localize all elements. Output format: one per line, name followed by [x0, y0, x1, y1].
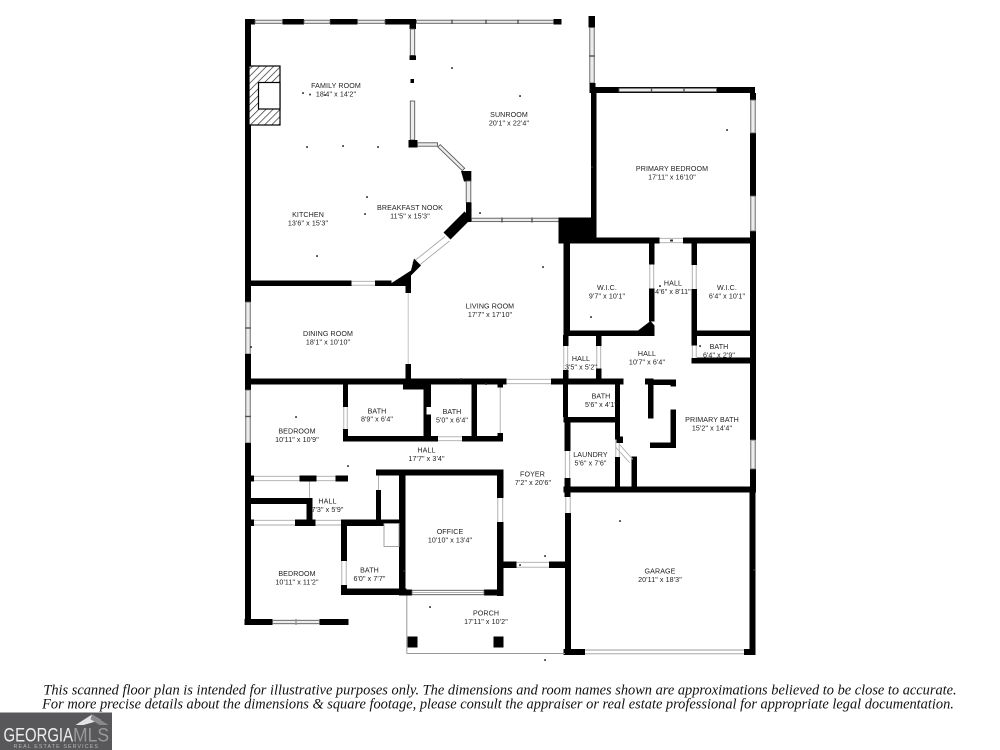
svg-text:FOYER: FOYER: [520, 470, 545, 478]
svg-text:BATH: BATH: [443, 408, 462, 416]
svg-text:BATH: BATH: [360, 567, 379, 575]
svg-text:20'11" x 18'3": 20'11" x 18'3": [638, 576, 682, 584]
svg-text:BATH: BATH: [368, 408, 387, 416]
svg-text:17'7" x 17'10": 17'7" x 17'10": [468, 311, 513, 319]
svg-text:HALL: HALL: [664, 280, 682, 288]
svg-text:For more precise details about: For more precise details about the dimen…: [41, 697, 954, 713]
svg-text:17'7" x 3'4": 17'7" x 3'4": [408, 455, 445, 463]
svg-text:W.I.C.: W.I.C.: [597, 284, 617, 292]
svg-text:BEDROOM: BEDROOM: [278, 428, 315, 436]
svg-text:W.I.C.: W.I.C.: [717, 284, 737, 292]
svg-text:HALL: HALL: [638, 350, 656, 358]
svg-text:OFFICE: OFFICE: [437, 528, 464, 536]
svg-text:18'4" x 14'2": 18'4" x 14'2": [316, 90, 357, 98]
svg-text:BREAKFAST NOOK: BREAKFAST NOOK: [377, 204, 443, 212]
svg-text:LIVING ROOM: LIVING ROOM: [466, 303, 514, 311]
svg-text:PRIMARY BEDROOM: PRIMARY BEDROOM: [636, 165, 708, 173]
svg-text:HALL: HALL: [572, 355, 590, 363]
svg-text:7'2" x 20'6": 7'2" x 20'6": [515, 479, 552, 487]
svg-text:PRIMARY BATH: PRIMARY BATH: [685, 416, 739, 424]
svg-text:BATH: BATH: [592, 393, 611, 401]
svg-text:FAMILY ROOM: FAMILY ROOM: [311, 82, 361, 90]
svg-text:6'4" x 10'1": 6'4" x 10'1": [709, 293, 746, 301]
svg-text:DINING ROOM: DINING ROOM: [303, 330, 353, 338]
svg-text:17'11" x 10'2": 17'11" x 10'2": [464, 618, 508, 626]
svg-text:13'6" x 15'3": 13'6" x 15'3": [288, 220, 329, 228]
svg-text:10'7" x 6'4": 10'7" x 6'4": [629, 359, 666, 367]
svg-text:9'7" x 10'1": 9'7" x 10'1": [589, 293, 626, 301]
svg-text:HALL: HALL: [318, 497, 336, 505]
svg-text:BEDROOM: BEDROOM: [278, 570, 315, 578]
svg-text:10'11" x 11'2": 10'11" x 11'2": [275, 579, 319, 587]
svg-text:KITCHEN: KITCHEN: [292, 211, 324, 219]
svg-text:20'1" x 22'4": 20'1" x 22'4": [489, 119, 530, 127]
svg-text:8'9" x 6'4": 8'9" x 6'4": [361, 416, 393, 424]
svg-text:18'1" x 10'10": 18'1" x 10'10": [306, 339, 351, 347]
svg-text:PORCH: PORCH: [473, 610, 499, 618]
svg-text:LAUNDRY: LAUNDRY: [573, 451, 608, 459]
svg-text:17'11" x 16'10": 17'11" x 16'10": [648, 174, 696, 182]
svg-text:7'3" x 5'9": 7'3" x 5'9": [311, 506, 343, 514]
svg-text:10'10" x 13'4": 10'10" x 13'4": [428, 537, 473, 545]
svg-text:REAL ESTATE SERVICES: REAL ESTATE SERVICES: [14, 744, 100, 750]
svg-text:3'5" x 5'2": 3'5" x 5'2": [565, 364, 597, 372]
svg-text:BATH: BATH: [710, 343, 729, 351]
svg-text:6'4" x 2'9": 6'4" x 2'9": [703, 352, 735, 360]
svg-text:5'6" x 4'1": 5'6" x 4'1": [585, 401, 617, 409]
svg-text:11'5" x 15'3": 11'5" x 15'3": [390, 213, 430, 221]
svg-text:10'11" x 10'9": 10'11" x 10'9": [275, 436, 319, 444]
svg-text:5'0" x 6'4": 5'0" x 6'4": [436, 417, 468, 425]
svg-text:SUNROOM: SUNROOM: [490, 111, 528, 119]
svg-text:5'6" x 7'6": 5'6" x 7'6": [574, 460, 606, 468]
svg-text:HALL: HALL: [417, 447, 435, 455]
svg-text:4'6" x 8'11": 4'6" x 8'11": [655, 288, 691, 296]
svg-text:15'2" x 14'4": 15'2" x 14'4": [692, 425, 733, 433]
svg-text:6'0" x 7'7": 6'0" x 7'7": [353, 575, 385, 583]
svg-text:GARAGE: GARAGE: [645, 568, 676, 576]
